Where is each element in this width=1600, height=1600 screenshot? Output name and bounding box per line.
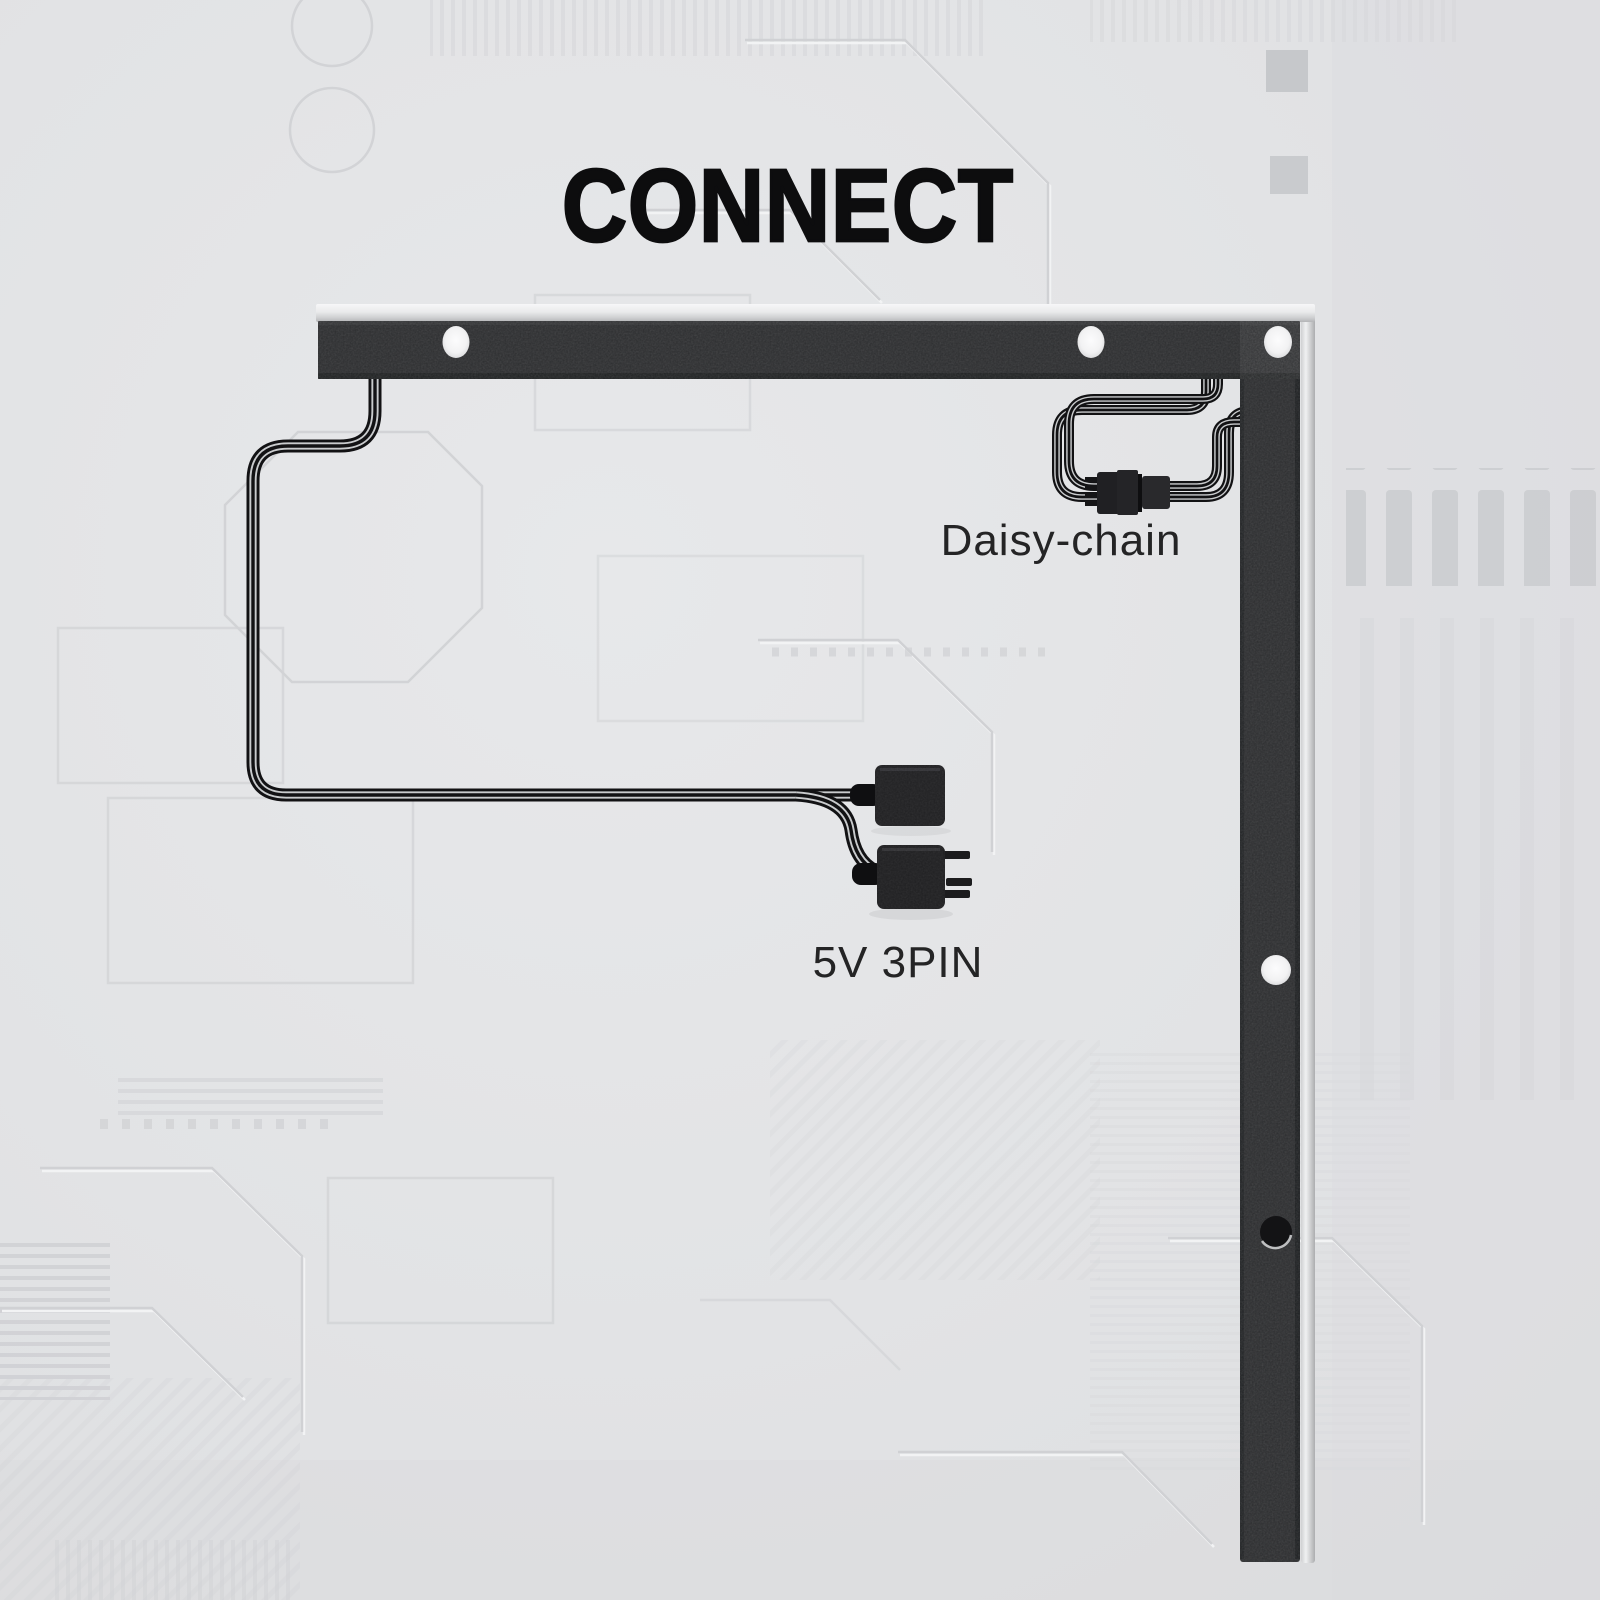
page-title: CONNECT [562,148,1014,266]
power-connector-label: 5V 3PIN [813,938,984,988]
mounting-hole [1264,326,1292,358]
connect-product-diagram: CONNECT Daisy-chain 5V 3PIN [0,0,1600,1600]
led-strip-bracket-vertical-edge [1301,304,1315,1563]
daisy-chain-connector-pair [1085,470,1170,515]
mounting-hole [443,326,470,358]
mounting-hole [1078,326,1105,358]
connector-pin [943,890,970,898]
connector-pin [946,878,972,886]
connector-pin [943,851,970,859]
power-connector-5v-3pin [850,765,972,920]
daisy-chain-label: Daisy-chain [941,516,1182,566]
led-strip-bracket-top-edge [316,304,1315,322]
power-cable [253,379,876,871]
mounting-hole [1261,955,1291,985]
